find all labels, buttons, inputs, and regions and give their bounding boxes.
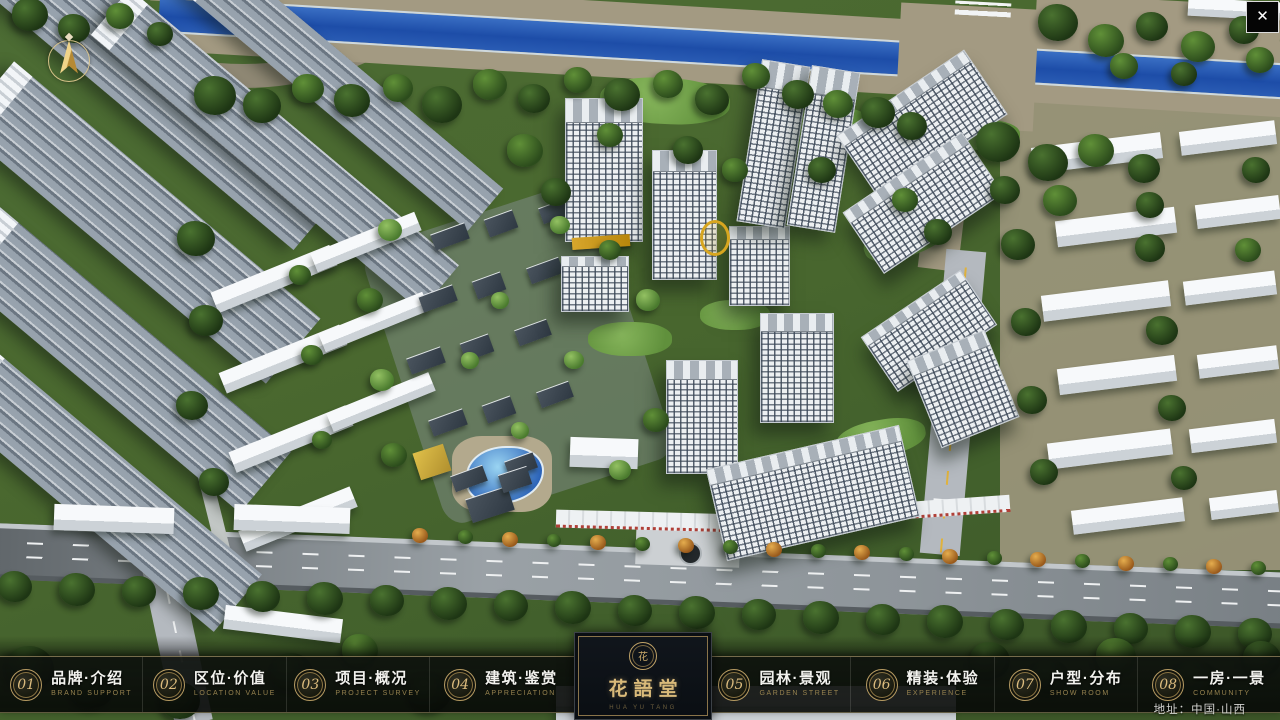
tree xyxy=(653,70,683,98)
nav-badge-02: 02 xyxy=(153,669,185,701)
tree xyxy=(431,587,467,620)
tree xyxy=(564,67,592,93)
tree xyxy=(550,216,570,234)
highrise-tower xyxy=(565,98,643,242)
tree xyxy=(547,534,561,547)
tree xyxy=(1163,557,1178,571)
highrise-tower xyxy=(652,150,717,280)
tree xyxy=(541,178,571,206)
tree xyxy=(177,221,215,256)
tree xyxy=(189,305,223,336)
tree xyxy=(370,369,394,391)
nav-item-garden[interactable]: 05 园林·景观 GARDEN STREET xyxy=(708,657,850,712)
nav-label-en: APPRECIATION xyxy=(485,690,558,698)
tree xyxy=(1136,12,1168,41)
tree xyxy=(590,535,606,550)
tree xyxy=(854,545,870,560)
tree xyxy=(1001,229,1035,260)
nav-item-architecture[interactable]: 04 建筑·鉴赏 APPRECIATION xyxy=(429,657,572,712)
tree xyxy=(942,549,958,564)
tree xyxy=(183,577,219,610)
tree xyxy=(1158,395,1186,421)
nav-label-zh: 园林·景观 xyxy=(759,671,839,688)
tree xyxy=(555,591,591,624)
tree xyxy=(1135,234,1165,262)
tree xyxy=(1171,62,1197,86)
tree xyxy=(1242,157,1270,183)
nav-item-location[interactable]: 02 区位·价值 LOCATION VALUE xyxy=(142,657,285,712)
tree xyxy=(1118,556,1134,571)
tree xyxy=(1146,316,1178,345)
nav-label-zh: 品牌·介绍 xyxy=(51,671,132,688)
nav-badge-05: 05 xyxy=(718,669,750,701)
tree xyxy=(636,289,660,311)
lawn xyxy=(588,322,672,356)
tree xyxy=(861,97,895,128)
tree xyxy=(243,88,281,123)
tree xyxy=(194,76,236,115)
tree xyxy=(1181,31,1215,62)
seal-emblem-icon: 花 xyxy=(629,642,657,670)
brand-subtitle: HUA YU TANG xyxy=(609,705,677,711)
tree xyxy=(742,63,770,89)
nav-badge-07: 07 xyxy=(1009,669,1041,701)
gold-ring-sculpture xyxy=(700,220,730,256)
tree xyxy=(1030,459,1058,485)
address-text: 地址：中国·山西 xyxy=(1154,701,1246,717)
tree xyxy=(1235,238,1261,262)
highrise-tower xyxy=(706,425,920,561)
nav-item-brand[interactable]: 01 品牌·介绍 BRAND SUPPORT xyxy=(0,657,142,712)
building-slab xyxy=(234,504,351,534)
tree xyxy=(823,90,853,118)
tree xyxy=(609,460,631,480)
brand-logo-panel[interactable]: 花 花語堂 HUA YU TANG xyxy=(574,632,712,720)
nav-label-zh: 项目·概况 xyxy=(335,671,421,688)
tree xyxy=(803,601,839,634)
highrise-tower xyxy=(666,360,738,474)
retail-colonnade xyxy=(556,510,742,533)
tree xyxy=(1251,561,1266,575)
nav-badge-03: 03 xyxy=(294,669,326,701)
tree xyxy=(412,528,428,543)
tree xyxy=(987,551,1002,565)
tree xyxy=(312,431,332,449)
tree xyxy=(1171,466,1197,490)
nav-badge-04: 04 xyxy=(444,669,476,701)
tree xyxy=(599,240,621,260)
nav-badge-06: 06 xyxy=(866,669,898,701)
crosswalk xyxy=(955,1,1012,18)
tree xyxy=(334,84,370,117)
tree xyxy=(383,74,413,102)
tree xyxy=(301,345,323,365)
tree xyxy=(866,604,900,635)
nav-label-en: GARDEN STREET xyxy=(759,690,839,698)
tree xyxy=(722,158,748,182)
tree xyxy=(307,582,343,615)
compass-north-icon xyxy=(44,36,94,86)
nav-label-en: LOCATION VALUE xyxy=(194,690,276,698)
roof-cap xyxy=(0,61,32,142)
app-window: ✕ 01 品牌·介绍 BRAND SUPPORT 02 区位·价值 LOCATI… xyxy=(0,0,1280,720)
nav-label-zh: 建筑·鉴赏 xyxy=(485,671,558,688)
tree xyxy=(1088,24,1124,57)
tree xyxy=(766,542,782,557)
tree xyxy=(518,84,550,113)
tower-roof xyxy=(862,271,966,346)
nav-label-zh: 一房·一景 xyxy=(1193,671,1266,688)
nav-label-zh: 区位·价值 xyxy=(194,671,276,688)
tree xyxy=(461,352,479,369)
tree xyxy=(679,596,715,629)
tree xyxy=(1075,554,1090,568)
tree xyxy=(597,123,623,147)
tree xyxy=(1043,185,1077,216)
tree xyxy=(723,540,738,554)
tree xyxy=(289,265,311,285)
nav-label-en: SHOW ROOM xyxy=(1050,690,1123,698)
tree xyxy=(782,80,814,109)
tree xyxy=(618,595,652,626)
tree xyxy=(808,157,836,183)
tree xyxy=(1246,47,1274,73)
nav-label-en: PROJECT SURVEY xyxy=(335,690,421,698)
nav-group-left: 01 品牌·介绍 BRAND SUPPORT 02 区位·价值 LOCATION… xyxy=(0,657,572,712)
tree xyxy=(1128,154,1160,183)
close-button[interactable]: ✕ xyxy=(1246,1,1279,33)
tree xyxy=(458,530,473,544)
nav-label-zh: 精装·体验 xyxy=(907,671,980,688)
tree xyxy=(678,538,694,553)
tree xyxy=(507,134,543,167)
nav-item-floorplan[interactable]: 07 户型·分布 SHOW ROOM xyxy=(994,657,1137,712)
tower-roof xyxy=(562,257,628,267)
highrise-tower xyxy=(760,313,834,423)
brand-title: 花語堂 xyxy=(602,674,683,701)
tree xyxy=(604,78,640,111)
tree xyxy=(990,176,1020,204)
tree xyxy=(924,219,952,245)
tree xyxy=(422,86,462,123)
nav-badge-08: 08 xyxy=(1152,669,1184,701)
tree xyxy=(897,112,927,140)
tree xyxy=(990,609,1024,640)
tree xyxy=(1030,552,1046,567)
tree xyxy=(1038,4,1078,41)
tower-roof xyxy=(761,314,833,332)
highrise-tower xyxy=(729,226,790,306)
nav-label-zh: 户型·分布 xyxy=(1050,671,1123,688)
tree xyxy=(927,605,963,638)
highrise-tower xyxy=(561,256,629,312)
tree xyxy=(494,590,528,621)
tree xyxy=(473,69,507,100)
tree xyxy=(1011,308,1041,336)
roof-cap xyxy=(0,343,5,416)
building-slab xyxy=(54,504,175,534)
tree xyxy=(12,0,48,31)
tree xyxy=(635,537,650,551)
tree xyxy=(378,219,402,241)
tree xyxy=(892,188,918,212)
tree xyxy=(643,408,669,432)
tree xyxy=(1017,386,1047,414)
tree xyxy=(695,84,729,115)
tower-roof xyxy=(667,361,737,380)
tree xyxy=(742,599,776,630)
tree xyxy=(1110,53,1138,79)
tree xyxy=(370,585,404,616)
tree xyxy=(246,581,280,612)
nav-item-project[interactable]: 03 项目·概况 PROJECT SURVEY xyxy=(286,657,429,712)
tree xyxy=(1078,134,1114,167)
roof-cap xyxy=(0,207,19,284)
tree xyxy=(899,547,914,561)
nav-label-en: COMMUNITY xyxy=(1193,690,1266,698)
tree xyxy=(0,571,32,602)
tree xyxy=(292,74,324,103)
nav-label-en: EXPERIENCE xyxy=(907,690,980,698)
tree xyxy=(511,422,529,439)
tree xyxy=(199,468,229,496)
tree xyxy=(1136,192,1164,218)
nav-badge-01: 01 xyxy=(10,669,42,701)
tree xyxy=(976,122,1020,162)
tree xyxy=(381,443,407,467)
tree xyxy=(1028,144,1068,181)
tree xyxy=(357,288,383,312)
tree xyxy=(1206,559,1222,574)
tree xyxy=(564,351,584,369)
tree xyxy=(491,292,509,309)
tree xyxy=(673,136,703,164)
nav-label-en: BRAND SUPPORT xyxy=(51,690,132,698)
nav-item-interior[interactable]: 06 精装·体验 EXPERIENCE xyxy=(850,657,993,712)
tree xyxy=(59,573,95,606)
tree xyxy=(122,576,156,607)
tree xyxy=(176,391,208,420)
tower-roof xyxy=(730,227,789,240)
tree xyxy=(502,532,518,547)
tree xyxy=(811,544,826,558)
tree xyxy=(106,3,134,29)
tree xyxy=(147,22,173,46)
